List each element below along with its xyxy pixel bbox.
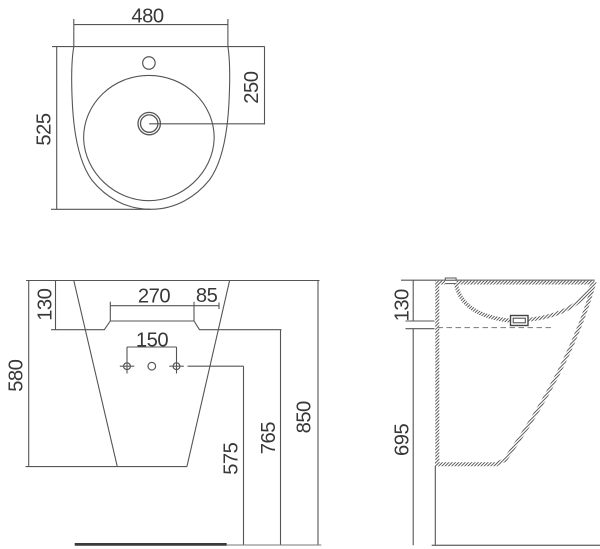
svg-text:130: 130 bbox=[34, 288, 56, 320]
svg-text:480: 480 bbox=[131, 5, 163, 27]
svg-text:85: 85 bbox=[196, 285, 218, 307]
svg-text:765: 765 bbox=[258, 422, 280, 454]
svg-text:270: 270 bbox=[138, 285, 170, 307]
svg-text:575: 575 bbox=[221, 442, 243, 474]
svg-text:250: 250 bbox=[241, 71, 263, 103]
svg-text:525: 525 bbox=[33, 113, 55, 145]
svg-text:130: 130 bbox=[391, 289, 413, 321]
svg-text:850: 850 bbox=[294, 401, 316, 433]
svg-text:580: 580 bbox=[5, 359, 27, 391]
svg-text:695: 695 bbox=[391, 424, 413, 456]
svg-text:150: 150 bbox=[136, 329, 168, 351]
